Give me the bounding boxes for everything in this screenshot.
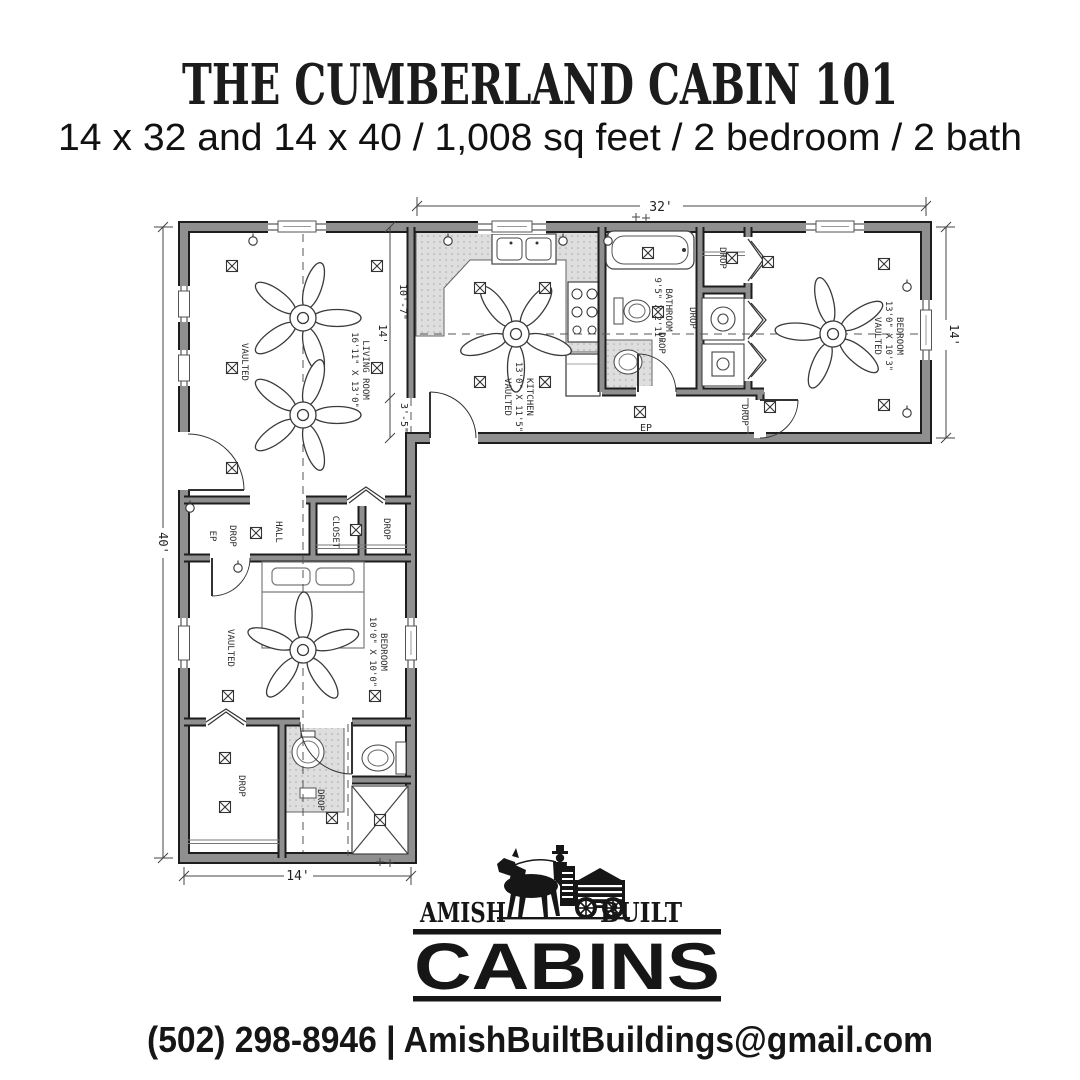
amish-built-cabins-logo: AMISH BUILT CABINS bbox=[413, 845, 721, 1003]
room-bedroom-main-note: VAULTED bbox=[872, 317, 882, 355]
room-kitchen-note: VAULTED bbox=[502, 378, 512, 416]
toilet-top bbox=[614, 298, 650, 324]
room-bedroom-second-note: VAULTED bbox=[225, 629, 235, 667]
label-drop: DROP bbox=[236, 775, 246, 797]
dim-right: 14' bbox=[947, 324, 961, 346]
logo-cabins: CABINS bbox=[414, 929, 720, 1003]
label-drop: DROP bbox=[315, 789, 325, 811]
dim-seg-lower: 3'-5" bbox=[398, 403, 409, 433]
page-subtitle: 14 x 32 and 14 x 40 / 1,008 sq feet / 2 … bbox=[58, 117, 1022, 159]
label-drop: DROP bbox=[656, 332, 666, 354]
dim-seg-upper: 10'-7" bbox=[397, 284, 408, 320]
label-drop: DROP bbox=[227, 525, 237, 547]
room-hall: HALL bbox=[273, 521, 283, 543]
room-kitchen-dims: 13'0" X 11'5" bbox=[513, 362, 523, 432]
floor-plan: THE CUMBERLAND CABIN 101 14 x 32 and 14 … bbox=[0, 0, 1080, 1080]
dim-seg-total: 14' bbox=[376, 324, 389, 344]
bathroom-vanity-top bbox=[606, 340, 652, 390]
room-bedroom-second-dims: 10'0" X 10'0" bbox=[367, 617, 377, 687]
contact-line: (502) 298-8946 | AmishBuiltBuildings@gma… bbox=[147, 1019, 933, 1061]
dim-bottom: 14' bbox=[286, 869, 309, 884]
poster: { "header": { "title": "THE CUMBERLAND C… bbox=[0, 0, 1080, 1080]
washer-dryer bbox=[702, 298, 744, 386]
room-kitchen-name: KITCHEN bbox=[524, 378, 534, 416]
room-bedroom-second-name: BEDROOM bbox=[378, 633, 388, 672]
toilet-bottom bbox=[362, 742, 406, 774]
page-title: THE CUMBERLAND CABIN 101 bbox=[182, 52, 898, 118]
room-closet: CLOSET bbox=[330, 516, 340, 549]
room-living-name: LIVING ROOM bbox=[360, 340, 370, 400]
label-drop: DROP bbox=[381, 518, 391, 540]
label-drop: DROP bbox=[739, 404, 749, 426]
room-bedroom-main-name: BEDROOM bbox=[894, 317, 904, 356]
bathroom-vanity-bottom bbox=[284, 724, 344, 812]
room-bathroom-name: BATHROOM bbox=[663, 288, 673, 332]
room-bedroom-main-dims: 13'0" X 10'3" bbox=[883, 301, 893, 371]
logo-amish: AMISH bbox=[419, 898, 506, 929]
label-drop: DROP bbox=[687, 307, 697, 329]
dim-top: 32' bbox=[649, 200, 672, 215]
logo-rule-bottom bbox=[413, 996, 721, 1002]
room-living-note: VAULTED bbox=[239, 343, 249, 381]
shower bbox=[352, 786, 408, 854]
logo-built: BUILT bbox=[600, 898, 682, 929]
label-ep: EP bbox=[207, 531, 217, 542]
room-living-dims: 16'11" X 13'0" bbox=[349, 332, 359, 408]
label-ep: EP bbox=[640, 423, 652, 434]
label-drop: DROP bbox=[717, 247, 727, 269]
dim-left: 40' bbox=[156, 532, 170, 554]
